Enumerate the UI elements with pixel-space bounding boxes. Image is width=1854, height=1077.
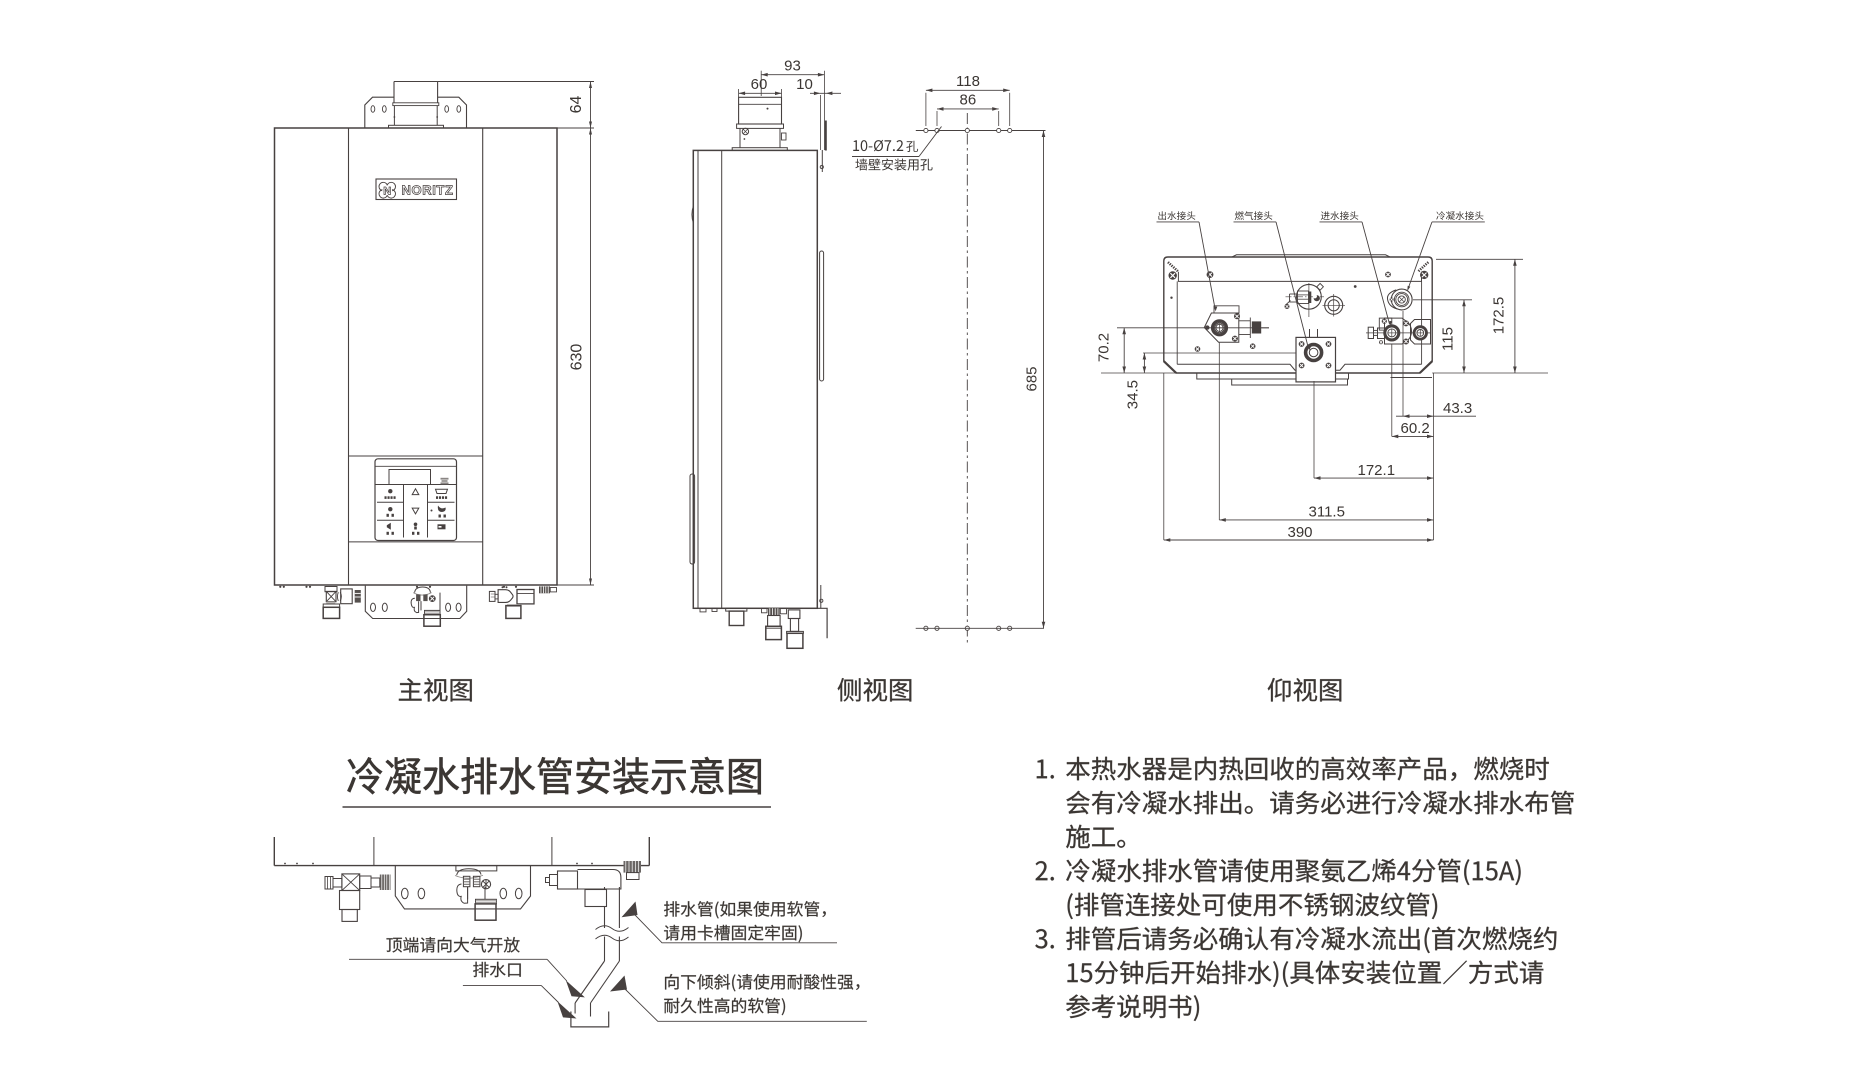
svg-text:NORITZ: NORITZ — [402, 183, 454, 198]
svg-text:172.5: 172.5 — [1491, 297, 1508, 335]
svg-text:630: 630 — [568, 344, 585, 371]
svg-text:43.3: 43.3 — [1443, 400, 1472, 417]
svg-text:172.1: 172.1 — [1358, 462, 1396, 479]
svg-text:86: 86 — [960, 91, 977, 108]
svg-text:34.5: 34.5 — [1125, 380, 1142, 409]
svg-text:390: 390 — [1288, 524, 1313, 541]
svg-text:118: 118 — [956, 73, 980, 90]
svg-text:93: 93 — [784, 58, 801, 75]
svg-text:N: N — [383, 186, 391, 198]
svg-text:70.2: 70.2 — [1096, 333, 1113, 362]
svg-text:60: 60 — [751, 76, 768, 93]
svg-text:64: 64 — [568, 96, 585, 114]
svg-text:60.2: 60.2 — [1401, 420, 1430, 437]
svg-text:10: 10 — [796, 76, 813, 93]
svg-text:685: 685 — [1024, 366, 1041, 391]
svg-text:115: 115 — [1440, 327, 1457, 351]
svg-text:311.5: 311.5 — [1309, 504, 1345, 521]
